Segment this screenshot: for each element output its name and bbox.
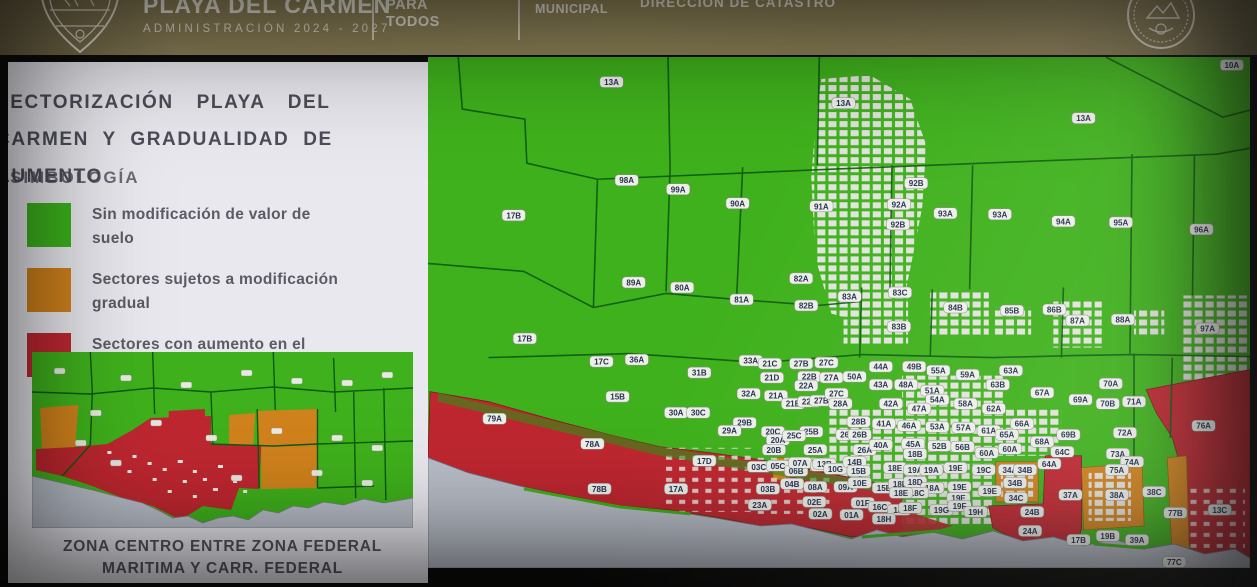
inset-caption-line1: ZONA CENTRO ENTRE ZONA FEDERAL: [32, 536, 413, 558]
sector-label-27B: 27B: [789, 358, 812, 369]
svg-text:19E: 19E: [983, 487, 998, 496]
sector-label-95A: 95A: [1109, 217, 1132, 228]
svg-text:03C: 03C: [751, 463, 766, 472]
legend-label: Sin modificación de valor de suelo: [92, 203, 342, 251]
sector-label-71A: 71A: [1122, 396, 1145, 407]
svg-text:56B: 56B: [955, 443, 970, 452]
svg-text:17C: 17C: [594, 358, 609, 367]
svg-text:27B: 27B: [794, 360, 809, 369]
svg-text:57A: 57A: [956, 424, 971, 433]
svg-text:38A: 38A: [1109, 491, 1124, 500]
sector-label-45A: 45A: [901, 438, 924, 449]
slogan-block: PARA TODOS: [386, 0, 440, 31]
svg-text:69B: 69B: [1061, 431, 1076, 440]
sector-label-13A: 13A: [600, 77, 623, 88]
sector-label-18B: 18B: [903, 448, 926, 459]
sector-label-17B: 17B: [513, 333, 536, 344]
sector-label-17D: 17D: [693, 455, 716, 466]
sector-label-69A: 69A: [1069, 394, 1092, 405]
sector-label-55A: 55A: [927, 365, 950, 376]
slogan-line2: TODOS: [386, 14, 440, 31]
legend-label: Sectores sujetos a modificación gradual: [92, 268, 342, 316]
sector-label-28A: 28A: [829, 398, 852, 409]
svg-text:59A: 59A: [960, 371, 975, 380]
sector-label-19C: 19C: [972, 464, 995, 475]
sector-label-04B: 04B: [780, 478, 803, 489]
svg-text:82B: 82B: [799, 302, 814, 311]
inset-orange-sector: [261, 444, 317, 489]
sector-label-28B: 28B: [847, 416, 870, 427]
svg-text:19E: 19E: [948, 464, 963, 473]
svg-text:80A: 80A: [675, 283, 690, 292]
sector-label-82B: 82B: [795, 300, 818, 311]
svg-text:10G: 10G: [828, 465, 843, 474]
slide-title-line3: AUMENTO SIMBOLOGÍA: [8, 158, 418, 195]
svg-text:65A: 65A: [1000, 431, 1015, 440]
svg-text:25C: 25C: [787, 432, 802, 441]
sector-label-22A: 22A: [795, 380, 818, 391]
svg-text:33A: 33A: [743, 357, 758, 366]
sector-label-64A: 64A: [1038, 458, 1061, 469]
sector-label-92B: 92B: [886, 219, 909, 230]
sector-label-18H: 18H: [872, 513, 895, 524]
svg-text:47A: 47A: [912, 405, 927, 414]
sector-label-02A: 02A: [809, 508, 832, 519]
sector-label-19E: 19E: [948, 481, 971, 492]
sector-label-18E: 18E: [883, 462, 906, 473]
header-divider: [518, 0, 520, 40]
sector-map: 13A13A13A10A98A99A90A91A17B92B92A92B93A9…: [428, 57, 1250, 568]
svg-text:83C: 83C: [893, 288, 908, 297]
svg-text:17A: 17A: [669, 485, 684, 494]
sector-label-17B: 17B: [502, 210, 525, 221]
sector-label-29A: 29A: [718, 425, 741, 436]
sector-label-15B: 15B: [606, 391, 629, 402]
sector-label-19E: 19E: [978, 485, 1001, 496]
sector-label-53A: 53A: [926, 421, 949, 432]
svg-text:37A: 37A: [1063, 491, 1078, 500]
sector-label-01A: 01A: [840, 509, 863, 520]
svg-text:79A: 79A: [487, 415, 502, 424]
svg-text:94A: 94A: [1056, 217, 1071, 226]
sector-label-30A: 30A: [664, 407, 687, 418]
svg-text:10A: 10A: [1224, 61, 1239, 70]
inset-caption: ZONA CENTRO ENTRE ZONA FEDERAL MARITIMA …: [32, 536, 413, 580]
svg-text:61A: 61A: [981, 427, 996, 436]
municipal-crest-icon: [28, 0, 133, 55]
sector-label-34B: 34B: [1003, 477, 1026, 488]
sector-label-15B: 15B: [847, 465, 870, 476]
svg-text:70B: 70B: [1100, 400, 1115, 409]
svg-text:66A: 66A: [1015, 420, 1030, 429]
sector-label-02E: 02E: [803, 496, 826, 507]
svg-text:78B: 78B: [592, 485, 607, 494]
sector-label-38A: 38A: [1105, 489, 1128, 500]
sector-label-39A: 39A: [1125, 534, 1148, 545]
sector-label-70A: 70A: [1099, 378, 1122, 389]
svg-text:92A: 92A: [892, 200, 907, 209]
svg-text:25A: 25A: [808, 446, 823, 455]
svg-text:17D: 17D: [697, 457, 712, 466]
svg-text:02A: 02A: [813, 510, 828, 519]
legend-item-1: Sectores sujetos a modificación gradual: [27, 268, 428, 316]
svg-text:17B: 17B: [1071, 536, 1086, 545]
sector-label-83C: 83C: [888, 287, 911, 298]
svg-text:01A: 01A: [844, 511, 859, 520]
svg-text:93A: 93A: [938, 209, 953, 218]
brand-title: PLAYA DEL CARMEN: [143, 0, 391, 19]
sector-label-42A: 42A: [879, 398, 902, 409]
svg-text:44A: 44A: [873, 363, 888, 372]
svg-text:88A: 88A: [1116, 316, 1131, 325]
svg-text:28B: 28B: [851, 418, 866, 427]
sector-label-72A: 72A: [1113, 427, 1136, 438]
sector-label-99A: 99A: [666, 184, 689, 195]
sector-label-52B: 52B: [928, 440, 951, 451]
sector-label-26B: 26B: [848, 429, 871, 440]
svg-text:97A: 97A: [1200, 325, 1215, 334]
sector-label-88A: 88A: [1111, 314, 1134, 325]
svg-text:20B: 20B: [767, 446, 782, 455]
inset-orange-sector: [229, 413, 255, 448]
svg-text:84B: 84B: [948, 304, 963, 313]
sector-label-13A: 13A: [1072, 113, 1095, 124]
inset-caption-line2: MARITIMA Y CARR. FEDERAL: [32, 558, 413, 580]
svg-text:62A: 62A: [986, 405, 1001, 414]
sector-label-18E: 18E: [889, 487, 912, 498]
sector-label-65A: 65A: [995, 429, 1018, 440]
sector-label-62A: 62A: [982, 403, 1005, 414]
svg-text:41A: 41A: [876, 420, 891, 429]
sector-label-24B: 24B: [1020, 506, 1043, 517]
sector-label-44A: 44A: [869, 361, 892, 372]
svg-text:96A: 96A: [1194, 225, 1209, 234]
svg-text:50A: 50A: [847, 373, 862, 382]
sector-label-17C: 17C: [590, 356, 613, 367]
svg-text:04B: 04B: [785, 480, 800, 489]
sector-label-68A: 68A: [1031, 436, 1054, 447]
dept-line2: MUNICIPAL: [535, 2, 612, 17]
sector-label-90A: 90A: [726, 198, 749, 209]
svg-text:75A: 75A: [1109, 466, 1124, 475]
svg-text:77B: 77B: [1168, 509, 1183, 518]
direction-title: DIRECCIÓN DE CATASTRO: [640, 0, 836, 10]
svg-text:18F: 18F: [903, 504, 917, 513]
sector-label-83B: 83B: [887, 321, 910, 332]
svg-text:87A: 87A: [1070, 317, 1085, 326]
sector-label-13A: 13A: [832, 98, 855, 109]
sector-label-27C: 27C: [825, 388, 848, 399]
sector-label-58A: 58A: [954, 398, 977, 409]
legend-heading: SIMBOLOGÍA: [10, 159, 140, 196]
svg-text:34B: 34B: [1008, 479, 1023, 488]
slide-title: SECTORIZACIÓN PLAYA DEL CARMEN Y GRADUAL…: [8, 84, 418, 195]
svg-text:90A: 90A: [730, 199, 745, 208]
sector-label-78B: 78B: [588, 483, 611, 494]
svg-text:23A: 23A: [752, 501, 767, 510]
svg-text:19H: 19H: [968, 508, 983, 517]
svg-text:82A: 82A: [794, 274, 809, 283]
sector-label-63A: 63A: [999, 365, 1022, 376]
svg-text:54A: 54A: [930, 396, 945, 405]
sector-label-27A: 27A: [820, 372, 843, 383]
slide-title-line1: SECTORIZACIÓN PLAYA DEL: [8, 84, 418, 121]
svg-text:16C: 16C: [872, 503, 887, 512]
sector-label-85B: 85B: [1000, 305, 1023, 316]
sector-label-23A: 23A: [748, 499, 771, 510]
svg-text:19A: 19A: [924, 466, 939, 475]
sector-label-34B: 34B: [1013, 464, 1036, 475]
svg-text:15B: 15B: [610, 393, 625, 402]
sector-label-78A: 78A: [581, 438, 604, 449]
svg-text:18B: 18B: [908, 450, 923, 459]
svg-text:43A: 43A: [873, 381, 888, 390]
svg-text:32A: 32A: [741, 390, 756, 399]
sector-label-92B: 92B: [904, 178, 927, 189]
sidebar-info-panel: SECTORIZACIÓN PLAYA DEL CARMEN Y GRADUAL…: [8, 62, 428, 583]
svg-text:17B: 17B: [506, 211, 521, 220]
svg-text:63A: 63A: [1004, 367, 1019, 376]
svg-text:63B: 63B: [990, 381, 1005, 390]
header-banner: PLAYA DEL CARMEN ADMINISTRACIÓN 2024 - 2…: [0, 0, 1257, 55]
municipal-seal-icon: [1115, 0, 1207, 54]
svg-text:21C: 21C: [763, 360, 778, 369]
svg-text:07A: 07A: [793, 459, 808, 468]
sector-label-19E: 19E: [944, 462, 967, 473]
svg-text:02E: 02E: [807, 498, 822, 507]
sector-label-50A: 50A: [843, 371, 866, 382]
sector-label-21D: 21D: [760, 372, 783, 383]
legend-swatch: [27, 268, 71, 312]
sector-label-98A: 98A: [615, 175, 638, 186]
svg-text:21A: 21A: [769, 392, 784, 401]
sector-label-92A: 92A: [887, 199, 910, 210]
svg-text:69A: 69A: [1073, 396, 1088, 405]
sector-label-87A: 87A: [1066, 315, 1089, 326]
sector-label-77B: 77B: [1164, 507, 1187, 518]
svg-text:45A: 45A: [906, 440, 921, 449]
svg-text:31B: 31B: [692, 369, 707, 378]
sector-label-19H: 19H: [964, 506, 987, 517]
sector-label-43A: 43A: [869, 379, 892, 390]
svg-text:60A: 60A: [979, 449, 994, 458]
sector-map-svg: 13A13A13A10A98A99A90A91A17B92B92A92B93A9…: [428, 57, 1250, 568]
svg-text:38C: 38C: [1147, 488, 1162, 497]
svg-text:78A: 78A: [585, 440, 600, 449]
sector-label-17B: 17B: [1067, 534, 1090, 545]
svg-text:85B: 85B: [1005, 307, 1020, 316]
svg-text:60A: 60A: [1003, 445, 1018, 454]
svg-text:30A: 30A: [669, 409, 684, 418]
dept-line1: TESORERÍA: [535, 0, 612, 2]
sector-label-80A: 80A: [670, 282, 693, 293]
svg-text:19C: 19C: [976, 466, 991, 475]
sector-label-93A: 93A: [988, 209, 1011, 220]
sector-label-49B: 49B: [902, 361, 925, 372]
sector-label-27C: 27C: [815, 357, 838, 368]
svg-text:99A: 99A: [671, 185, 686, 194]
svg-text:29A: 29A: [722, 427, 737, 436]
svg-text:86B: 86B: [1047, 306, 1062, 315]
inset-orange-sector: [257, 409, 317, 446]
sector-label-18F: 18F: [898, 502, 921, 513]
sector-label-31B: 31B: [688, 367, 711, 378]
department-block: TESORERÍA MUNICIPAL: [535, 0, 612, 17]
sector-label-63B: 63B: [986, 379, 1009, 390]
svg-text:72A: 72A: [1118, 429, 1133, 438]
svg-text:34B: 34B: [1018, 466, 1033, 475]
svg-text:05C: 05C: [771, 462, 786, 471]
sector-label-32A: 32A: [737, 388, 760, 399]
svg-text:92B: 92B: [891, 220, 906, 229]
svg-text:83A: 83A: [842, 292, 857, 301]
svg-text:27C: 27C: [829, 390, 844, 399]
svg-text:83B: 83B: [892, 323, 907, 332]
sector-label-70B: 70B: [1096, 398, 1119, 409]
sector-label-97A: 97A: [1196, 323, 1219, 334]
sector-label-64C: 64C: [1051, 446, 1074, 457]
svg-text:89A: 89A: [626, 278, 641, 287]
svg-text:49B: 49B: [907, 363, 922, 372]
slide-title-line2: CARMEN Y GRADUALIDAD DE: [8, 121, 418, 158]
svg-text:27C: 27C: [819, 359, 834, 368]
sector-label-19A: 19A: [920, 464, 943, 475]
sector-label-91A: 91A: [810, 201, 833, 212]
svg-text:10E: 10E: [853, 479, 868, 488]
svg-text:52B: 52B: [932, 442, 947, 451]
svg-text:21D: 21D: [765, 374, 780, 383]
sector-label-60A: 60A: [998, 443, 1021, 454]
svg-text:53A: 53A: [930, 423, 945, 432]
header-divider: [372, 0, 374, 40]
svg-text:24A: 24A: [1023, 527, 1038, 536]
sector-label-37A: 37A: [1059, 489, 1082, 500]
sector-label-34C: 34C: [1004, 492, 1027, 503]
svg-text:48A: 48A: [899, 381, 914, 390]
svg-text:13C: 13C: [1212, 506, 1227, 515]
sector-label-56B: 56B: [951, 441, 974, 452]
sector-label-24A: 24A: [1018, 525, 1041, 536]
svg-text:81A: 81A: [734, 296, 749, 305]
svg-text:91A: 91A: [814, 202, 829, 211]
svg-text:39A: 39A: [1130, 536, 1145, 545]
svg-text:03B: 03B: [761, 485, 776, 494]
svg-text:55A: 55A: [931, 367, 946, 376]
sector-label-10A: 10A: [1220, 60, 1243, 71]
svg-text:18H: 18H: [876, 515, 891, 524]
svg-text:71A: 71A: [1127, 398, 1142, 407]
legend-swatch: [27, 203, 71, 247]
sector-label-20B: 20B: [762, 444, 785, 455]
sector-label-25A: 25A: [804, 444, 827, 455]
svg-text:22A: 22A: [799, 382, 814, 391]
sector-label-17A: 17A: [664, 483, 687, 494]
sector-label-93A: 93A: [934, 208, 957, 219]
svg-text:46A: 46A: [902, 422, 917, 431]
sector-label-82A: 82A: [789, 273, 812, 284]
svg-text:70A: 70A: [1103, 380, 1118, 389]
sector-label-30C: 30C: [687, 407, 710, 418]
svg-text:18E: 18E: [888, 464, 903, 473]
svg-text:15B: 15B: [851, 467, 866, 476]
svg-text:27A: 27A: [824, 374, 839, 383]
sector-label-25C: 25C: [782, 430, 805, 441]
sector-label-47A: 47A: [907, 403, 930, 414]
svg-text:19B: 19B: [1100, 532, 1115, 541]
svg-text:40A: 40A: [873, 441, 888, 450]
sector-label-48A: 48A: [894, 379, 917, 390]
svg-text:64C: 64C: [1055, 448, 1070, 457]
svg-text:92B: 92B: [909, 179, 924, 188]
sector-label-19B: 19B: [1096, 530, 1119, 541]
sector-label-08A: 08A: [804, 481, 827, 492]
svg-text:58A: 58A: [958, 400, 973, 409]
sector-label-75A: 75A: [1105, 464, 1128, 475]
sector-label-77C: 77C: [1163, 556, 1186, 567]
sector-label-81A: 81A: [730, 294, 753, 305]
sector-label-13C: 13C: [1208, 504, 1231, 515]
svg-text:30C: 30C: [691, 409, 706, 418]
sector-label-83A: 83A: [838, 291, 861, 302]
svg-text:13A: 13A: [1076, 114, 1091, 123]
sector-label-10E: 10E: [848, 477, 871, 488]
sector-label-84B: 84B: [944, 302, 967, 313]
sector-label-94A: 94A: [1052, 216, 1075, 227]
svg-text:24B: 24B: [1025, 508, 1040, 517]
sector-label-76A: 76A: [1192, 420, 1215, 431]
svg-text:18E: 18E: [894, 489, 909, 498]
sector-label-66A: 66A: [1010, 418, 1033, 429]
svg-text:19G: 19G: [934, 506, 949, 515]
svg-text:08A: 08A: [808, 483, 823, 492]
svg-text:25B: 25B: [804, 428, 819, 437]
svg-text:93A: 93A: [992, 210, 1007, 219]
svg-text:42A: 42A: [884, 400, 899, 409]
svg-text:68A: 68A: [1035, 438, 1050, 447]
sector-label-40A: 40A: [869, 439, 892, 450]
sector-label-69B: 69B: [1057, 429, 1080, 440]
sector-label-67A: 67A: [1031, 387, 1054, 398]
svg-text:17B: 17B: [517, 335, 532, 344]
sector-label-21C: 21C: [758, 358, 781, 369]
svg-text:76A: 76A: [1196, 422, 1211, 431]
sector-label-07A: 07A: [788, 457, 811, 468]
svg-text:64A: 64A: [1042, 460, 1057, 469]
inset-map: [32, 352, 413, 528]
svg-text:34C: 34C: [1009, 494, 1024, 503]
svg-text:98A: 98A: [619, 176, 634, 185]
svg-text:26B: 26B: [852, 431, 867, 440]
sector-label-60A: 60A: [975, 447, 998, 458]
inset-map-card: ZONA CENTRO ENTRE ZONA FEDERAL MARITIMA …: [32, 352, 413, 580]
sector-label-57A: 57A: [952, 422, 975, 433]
svg-text:13A: 13A: [604, 78, 619, 87]
svg-text:01F: 01F: [856, 499, 870, 508]
brand-block: PLAYA DEL CARMEN ADMINISTRACIÓN 2024 - 2…: [143, 0, 391, 35]
sector-label-36A: 36A: [625, 354, 648, 365]
sector-label-59A: 59A: [956, 369, 979, 380]
sector-label-46A: 46A: [897, 420, 920, 431]
svg-text:36A: 36A: [629, 356, 644, 365]
legend-item-0: Sin modificación de valor de suelo: [27, 203, 428, 251]
svg-text:67A: 67A: [1035, 389, 1050, 398]
slogan-line1: PARA: [386, 0, 440, 14]
inset-orange-sector: [40, 405, 78, 450]
sector-label-38C: 38C: [1142, 486, 1165, 497]
svg-text:28A: 28A: [833, 400, 848, 409]
sector-label-41A: 41A: [872, 418, 895, 429]
svg-text:19E: 19E: [952, 483, 967, 492]
